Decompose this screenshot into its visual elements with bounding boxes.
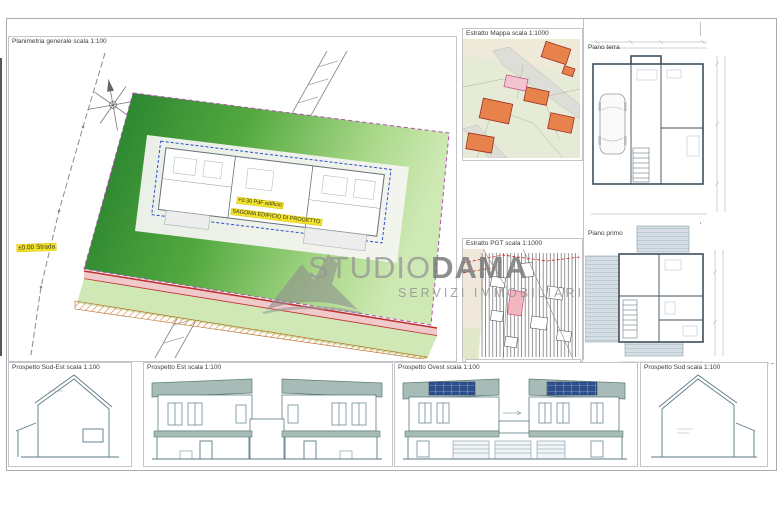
panel-piano-primo: Piano primo (585, 224, 735, 366)
panel-title: Estratto Mappa scala 1:1000 (466, 30, 549, 38)
cadastral-map-drawing (463, 39, 580, 158)
panel-prospetto-sud-est: Prospetto Sud-Est scala 1:100 (8, 362, 132, 467)
solar-panels-left (429, 382, 475, 395)
walls (619, 254, 703, 342)
panel-title: Planimetria generale scala 1:100 (12, 38, 107, 46)
elevation-est-drawing (144, 373, 390, 465)
panel-prospetto-ovest: Prospetto Ovest scala 1:100 (394, 362, 638, 467)
panel-planimetria: Planimetria generale scala 1:100 (8, 36, 457, 362)
panel-title: Prospetto Sud scala 1:100 (644, 364, 720, 372)
panel-title: Piano primo (588, 230, 623, 238)
ground-floor-plan-drawing (585, 36, 733, 220)
elevation-sud-est-drawing (9, 373, 129, 465)
first-floor-plan-drawing (585, 224, 733, 366)
panel-title: Prospetto Sud-Est scala 1:100 (12, 364, 100, 372)
panel-title: Piano terra (588, 44, 620, 52)
column-divider (583, 19, 584, 360)
pgt-subject-building (507, 290, 524, 316)
solar-panels-right (547, 382, 597, 395)
scan-edge-artifact (0, 58, 2, 356)
panel-title: Estratto PGT scala 1:1000 (466, 240, 542, 248)
panel-prospetto-est: Prospetto Est scala 1:100 (143, 362, 393, 467)
elevation-ovest-drawing (395, 373, 635, 465)
garage-doors (453, 441, 565, 459)
elevation-sud-drawing (641, 373, 765, 465)
panel-estratto-mappa: Estratto Mappa scala 1:1000 (462, 28, 583, 161)
panel-piano-terra: Piano terra (585, 36, 735, 220)
panel-title: Prospetto Ovest scala 1:100 (398, 364, 480, 372)
site-plan-drawing (9, 47, 454, 359)
drawing-sheet: Planimetria generale scala 1:100 (0, 0, 784, 508)
panel-prospetto-sud: Prospetto Sud scala 1:100 (640, 362, 768, 467)
car (599, 94, 627, 154)
panel-title: Prospetto Est scala 1:100 (147, 364, 221, 372)
panel-estratto-pgt: Estratto PGT scala 1:1000 (462, 238, 583, 362)
pgt-map-drawing (463, 249, 580, 359)
elevation-label-strada: ±0.00 Strada (17, 243, 56, 251)
